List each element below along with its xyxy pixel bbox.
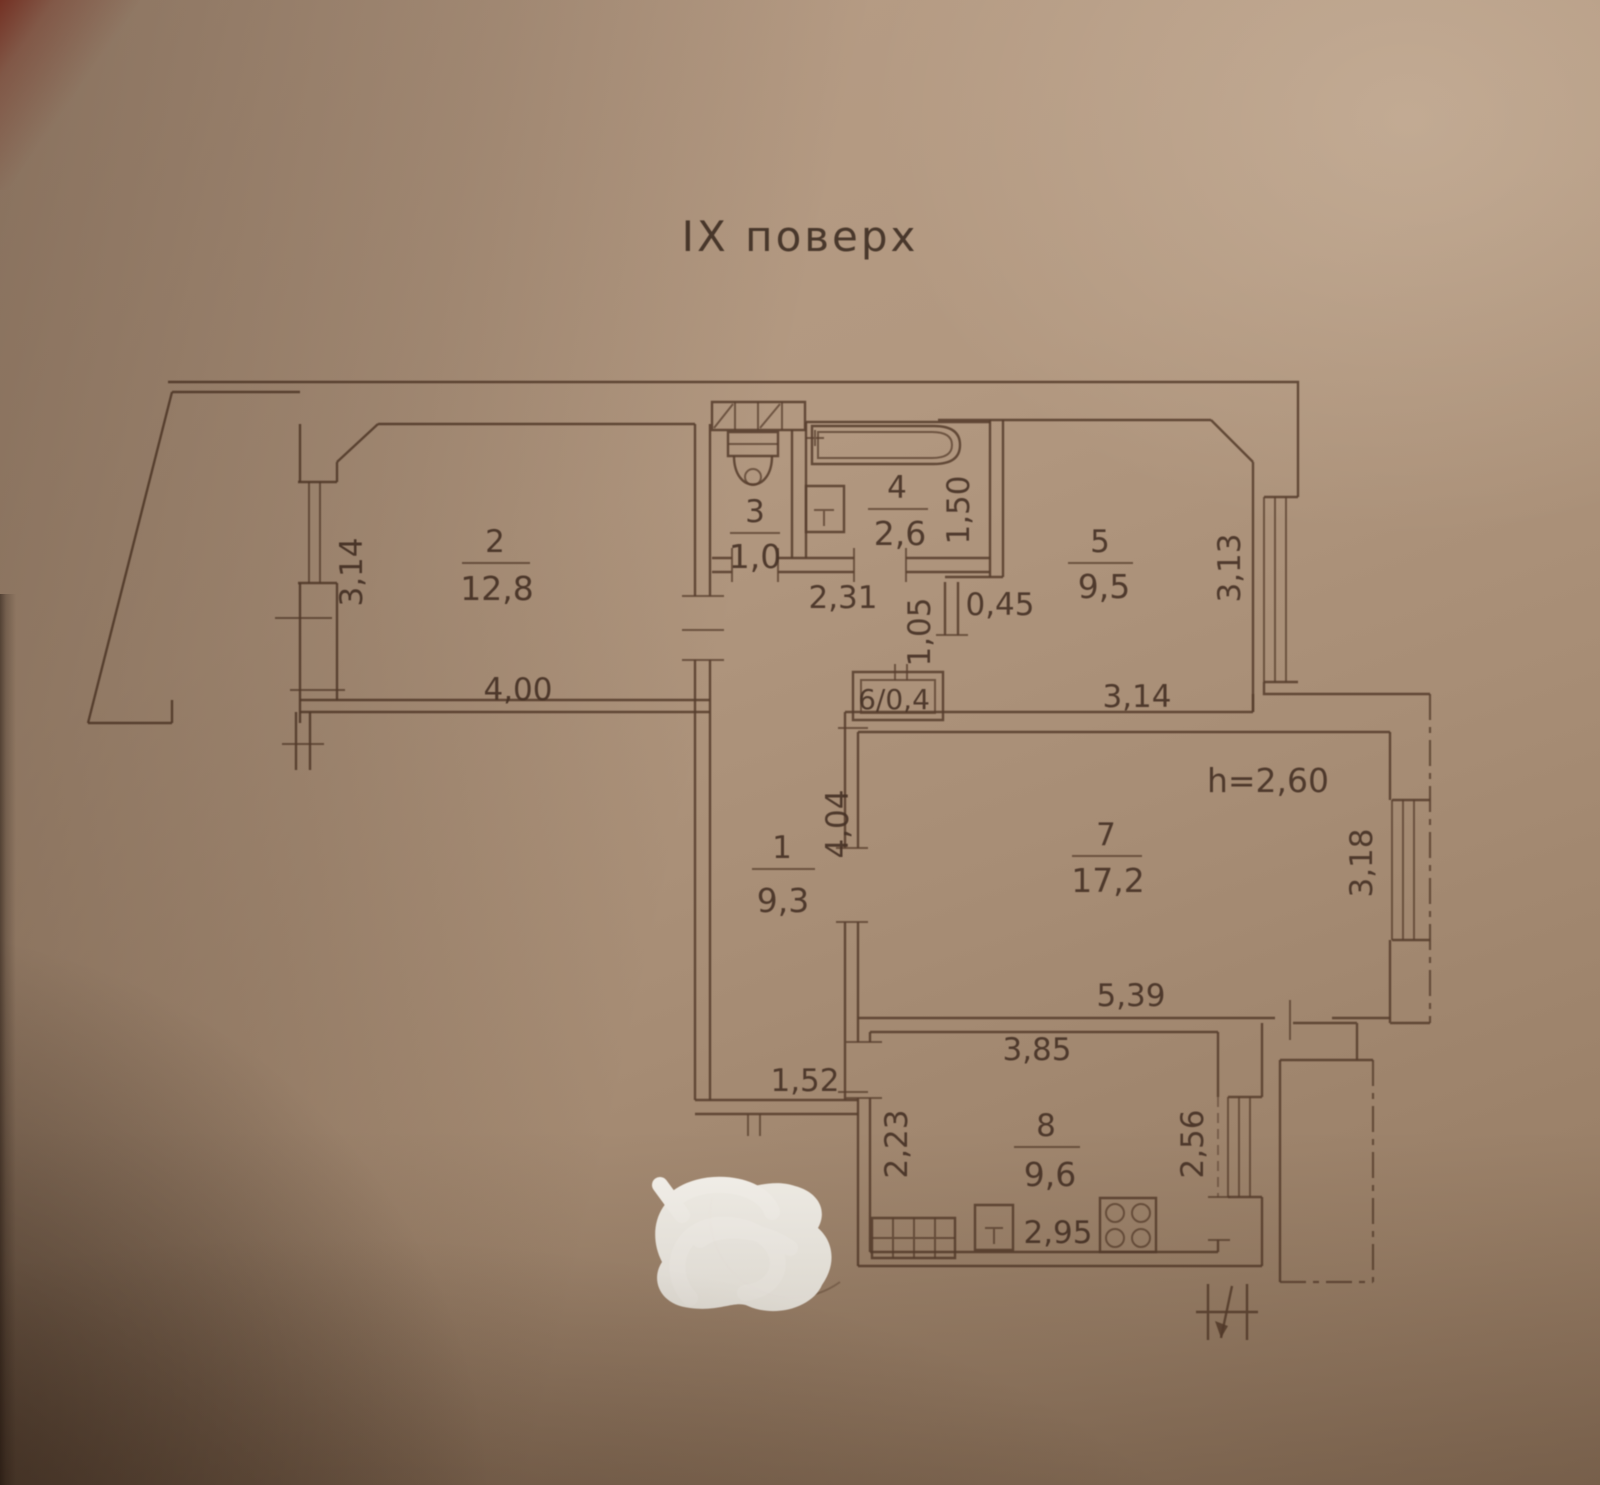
section-mark xyxy=(1196,1284,1258,1340)
room4-number: 4 xyxy=(887,470,907,506)
window-room5-icon xyxy=(1264,497,1298,682)
dim-kitchen-top: 3,85 xyxy=(1002,1032,1071,1068)
toilet-icon xyxy=(728,432,778,485)
room1-number: 1 xyxy=(772,830,792,866)
window-room2-icon xyxy=(298,482,337,583)
window-room7-icon xyxy=(1392,800,1430,940)
room-5-walls xyxy=(936,420,1253,712)
room-3-walls xyxy=(792,422,806,558)
room4-area: 2,6 xyxy=(874,514,926,553)
dim-room5-bottom: 3,14 xyxy=(1102,679,1171,715)
room-labels: 2 12,8 3 1,0 4 2,6 5 9,5 6/0,4 1 9,3 7 1… xyxy=(460,470,1329,1194)
room1-area: 9,3 xyxy=(757,881,809,920)
ceiling-height-note: h=2,60 xyxy=(1207,761,1329,800)
whiteout-blob xyxy=(655,1182,831,1311)
photographed-floor-plan: IX поверх xyxy=(0,0,1600,1485)
room6-label: 6/0,4 xyxy=(858,683,930,716)
dim-kitchen-bottom: 2,95 xyxy=(1023,1215,1092,1251)
room7-number: 7 xyxy=(1096,817,1116,853)
balcony-right xyxy=(1280,1060,1373,1282)
dim-corridor-side: 4,04 xyxy=(820,789,856,858)
building-outline xyxy=(168,382,1430,1023)
dim-room5-side: 3,13 xyxy=(1212,533,1248,602)
dim-corridor-bottom: 1,52 xyxy=(770,1063,839,1099)
dim-kitchen-right: 2,56 xyxy=(1175,1109,1211,1178)
loggia-left xyxy=(88,392,324,770)
room3-area: 1,0 xyxy=(729,537,781,576)
room2-number: 2 xyxy=(485,524,505,560)
room2-area: 12,8 xyxy=(460,569,533,608)
washbasin-icon xyxy=(806,486,844,532)
dim-kitchen-left: 2,23 xyxy=(879,1109,915,1178)
sink-icon xyxy=(975,1205,1013,1250)
bathtub-icon xyxy=(806,426,960,464)
vent-shaft-icon xyxy=(712,402,805,430)
dim-room7-side: 3,18 xyxy=(1344,828,1380,897)
floor-plan-drawing: 2 12,8 3 1,0 4 2,6 5 9,5 6/0,4 1 9,3 7 1… xyxy=(0,0,1600,1485)
dim-bath-side: 1,50 xyxy=(941,475,977,544)
room8-area: 9,6 xyxy=(1024,1155,1076,1194)
dim-room2-side: 3,14 xyxy=(334,537,370,606)
window-room8-icon xyxy=(1228,1097,1262,1197)
stove-icon xyxy=(1100,1198,1156,1252)
room7-area: 17,2 xyxy=(1071,861,1144,900)
dim-hall-stub: 0,45 xyxy=(965,587,1034,623)
dim-room7-bottom: 5,39 xyxy=(1096,978,1165,1014)
room5-area: 9,5 xyxy=(1078,567,1130,606)
room3-number: 3 xyxy=(745,494,765,530)
dim-hall-top: 2,31 xyxy=(808,580,877,616)
room5-number: 5 xyxy=(1090,524,1110,560)
room8-number: 8 xyxy=(1036,1108,1056,1144)
dim-room2-bottom: 4,00 xyxy=(483,672,552,708)
dim-hall-side: 1,05 xyxy=(902,597,938,666)
